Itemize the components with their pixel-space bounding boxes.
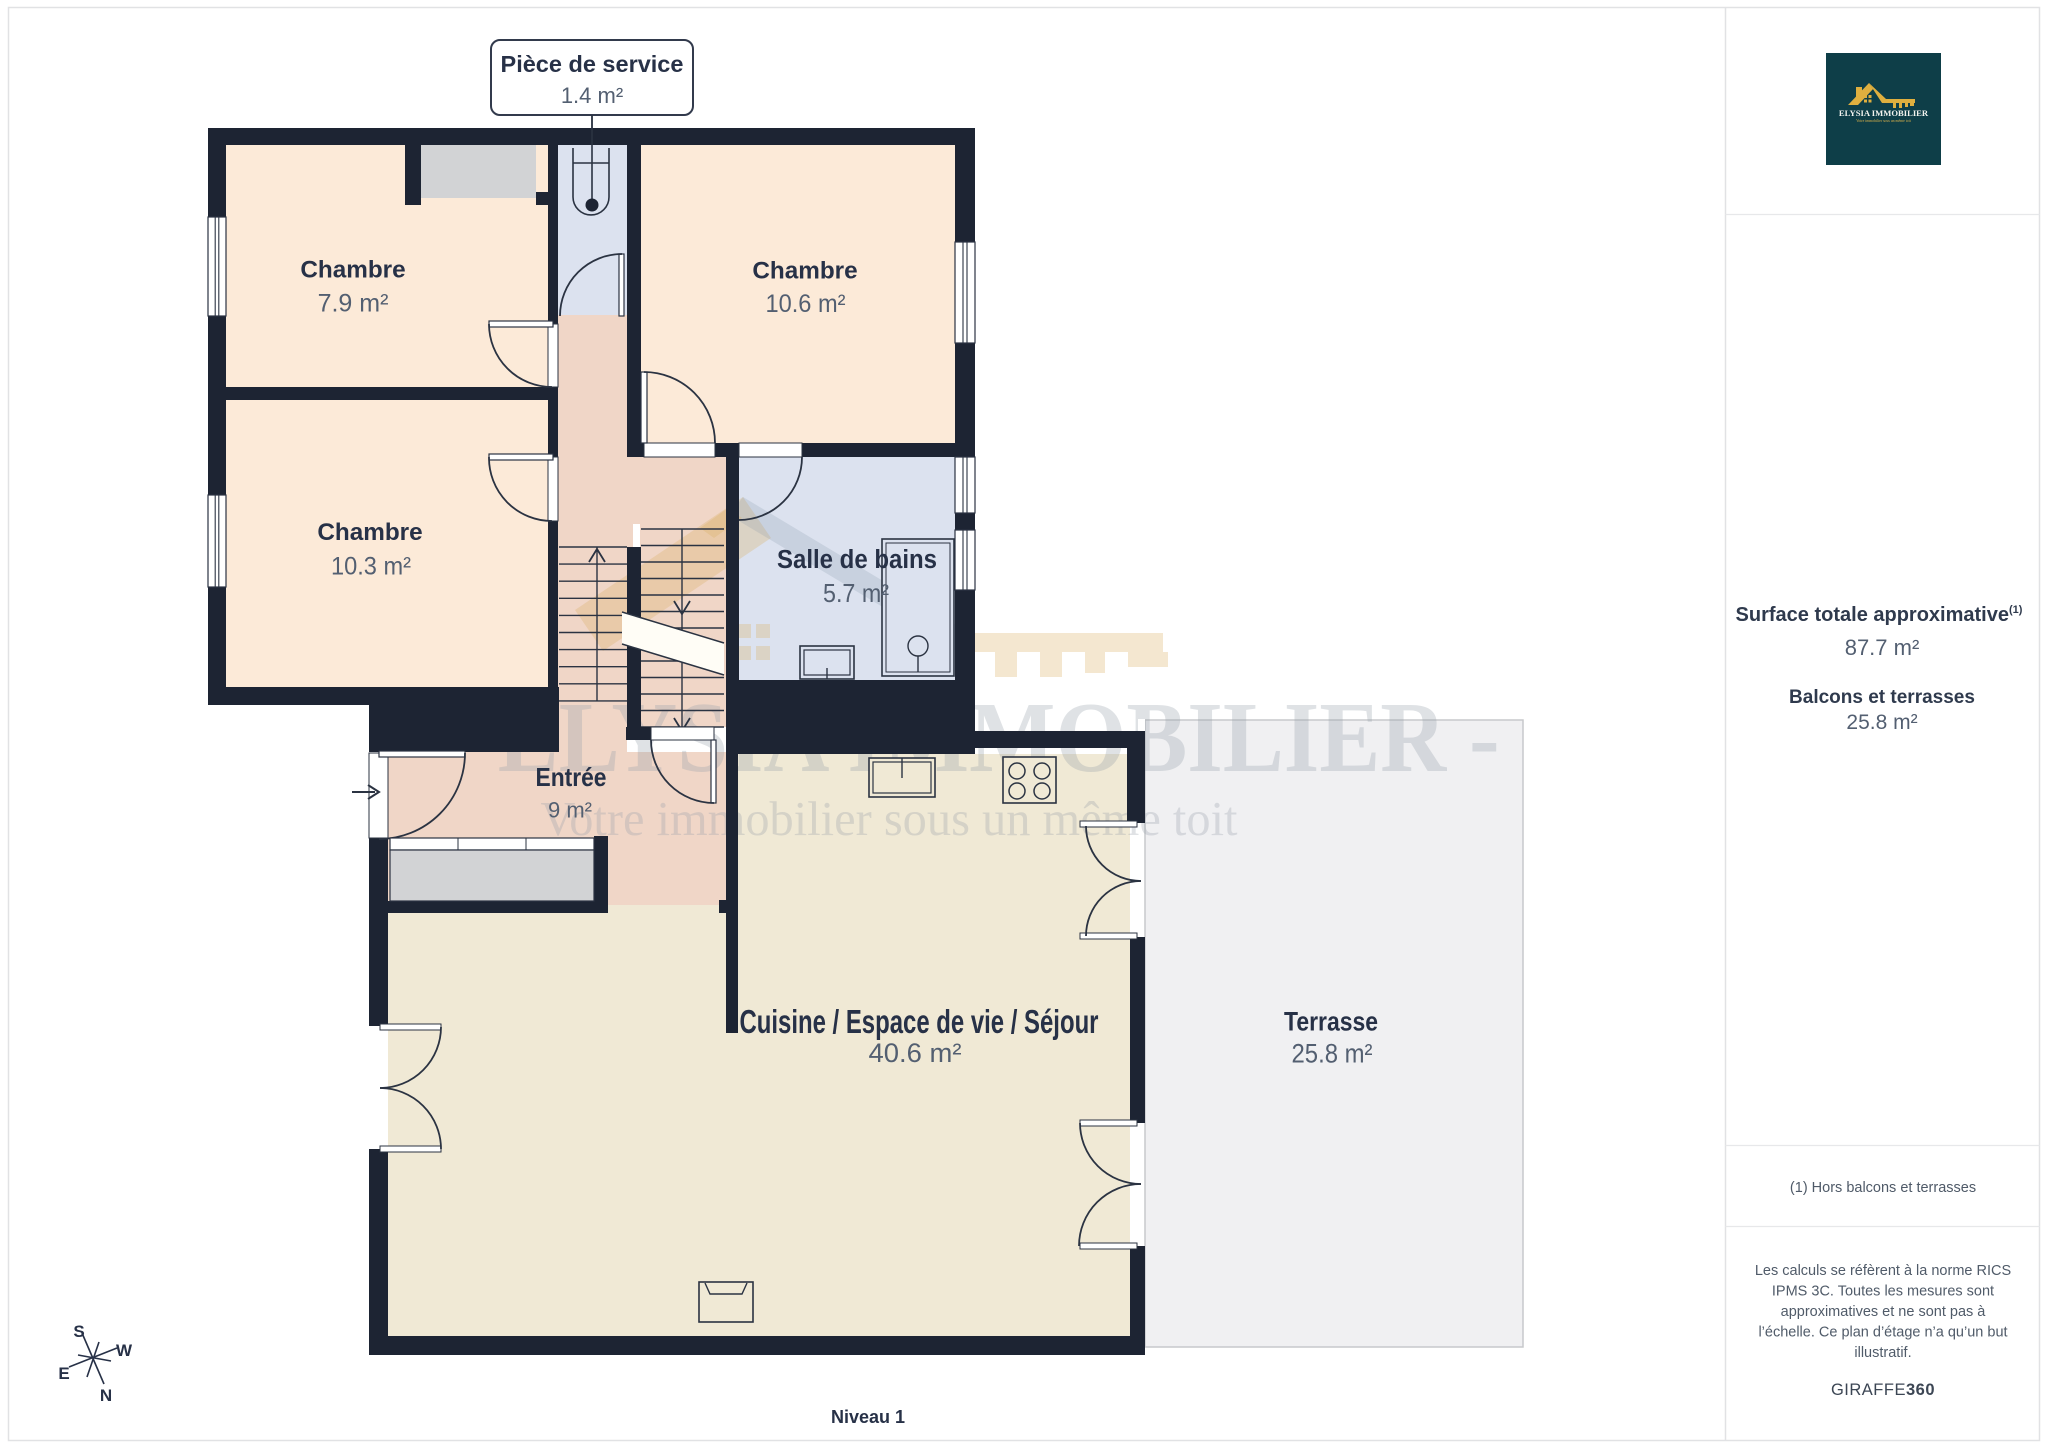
- svg-text:approximatives et ne sont pas: approximatives et ne sont pas à: [1781, 1304, 1987, 1320]
- svg-text:1.4 m²: 1.4 m²: [561, 83, 623, 108]
- svg-text:l’échelle. Ce plan d’étage n’a: l’échelle. Ce plan d’étage n’a qu’un but: [1758, 1325, 2007, 1341]
- svg-text:Niveau 1: Niveau 1: [831, 1407, 905, 1427]
- svg-text:(1) Hors balcons et terrasses: (1) Hors balcons et terrasses: [1790, 1180, 1976, 1196]
- svg-text:Pièce de service: Pièce de service: [501, 51, 684, 77]
- svg-text:40.6 m²: 40.6 m²: [869, 1038, 962, 1068]
- svg-text:5.7 m²: 5.7 m²: [823, 578, 889, 608]
- svg-text:10.6 m²: 10.6 m²: [766, 290, 846, 318]
- svg-text:7.9 m²: 7.9 m²: [318, 290, 389, 318]
- svg-text:IPMS 3C. Toutes les mesures so: IPMS 3C. Toutes les mesures sont: [1772, 1284, 1994, 1300]
- svg-text:Entrée: Entrée: [536, 762, 607, 792]
- svg-text:illustratif.: illustratif.: [1854, 1345, 1911, 1361]
- svg-text:ELYSIA IMMOBILIER: ELYSIA IMMOBILIER: [1839, 108, 1929, 118]
- svg-text:Salle de bains: Salle de bains: [777, 546, 937, 574]
- svg-text:25.8 m²: 25.8 m²: [1846, 711, 1917, 734]
- svg-text:9 m²: 9 m²: [548, 798, 592, 823]
- svg-text:GIRAFFE360: GIRAFFE360: [1831, 1381, 1935, 1399]
- svg-text:S: S: [73, 1322, 84, 1341]
- svg-text:Balcons et terrasses: Balcons et terrasses: [1789, 687, 1975, 708]
- svg-text:Les calculs se réfèrent à la n: Les calculs se réfèrent à la norme RICS: [1755, 1263, 2011, 1279]
- svg-text:N: N: [100, 1386, 112, 1405]
- svg-text:Terrasse: Terrasse: [1284, 1007, 1378, 1037]
- svg-text:Votre immobilier sous un même: Votre immobilier sous un même toit: [1856, 119, 1912, 123]
- svg-text:Chambre: Chambre: [300, 257, 405, 284]
- svg-text:25.8 m²: 25.8 m²: [1292, 1039, 1373, 1069]
- svg-text:Cuisine / Espace de vie / Séjo: Cuisine / Espace de vie / Séjour: [740, 1003, 1099, 1040]
- svg-text:W: W: [116, 1341, 133, 1360]
- svg-text:Chambre: Chambre: [317, 519, 422, 546]
- svg-text:87.7 m²: 87.7 m²: [1845, 635, 1920, 660]
- svg-text:10.3 m²: 10.3 m²: [331, 553, 411, 581]
- svg-text:E: E: [58, 1364, 69, 1383]
- svg-text:Surface totale approximative(1: Surface totale approximative(1): [1736, 604, 2023, 626]
- svg-text:Chambre: Chambre: [752, 258, 857, 285]
